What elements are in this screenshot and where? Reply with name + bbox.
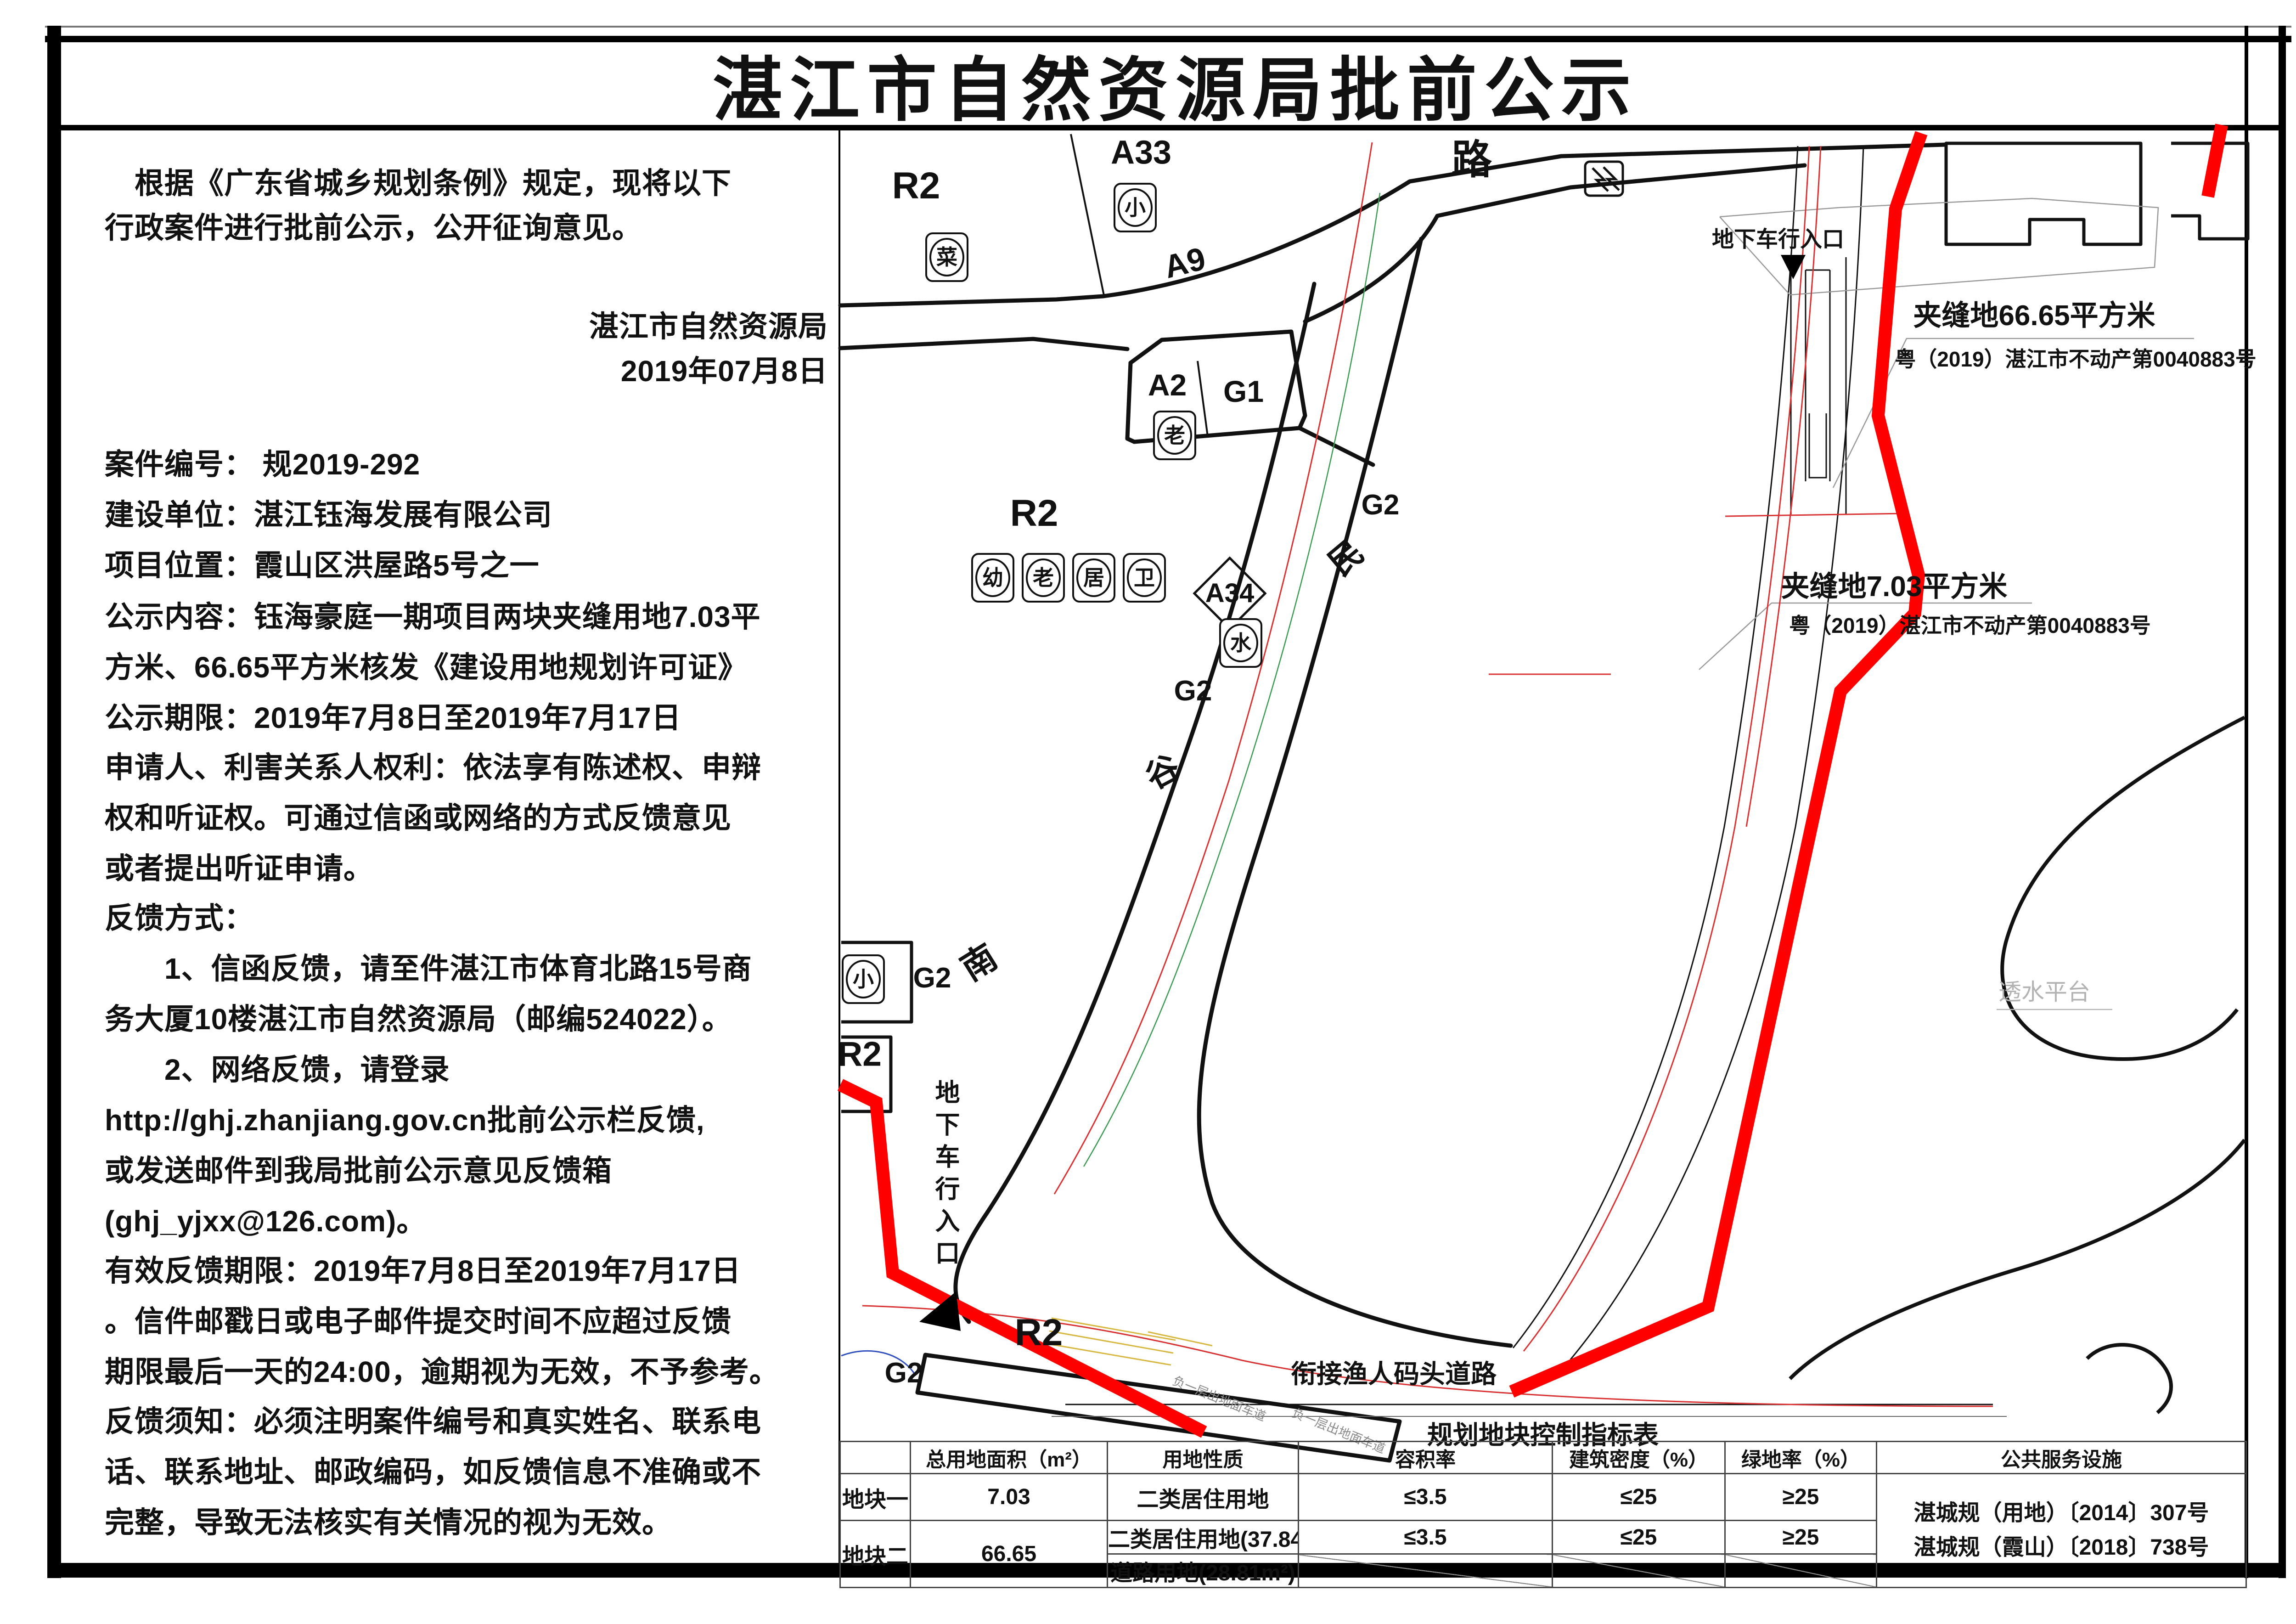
symbol-residence: 居: [1072, 553, 1115, 603]
plot1-density: ≤25: [1553, 1474, 1725, 1521]
services-line-1: 湛城规（用地）〔2014〕307号: [1877, 1496, 2245, 1530]
zone-label-g2: G2: [1362, 491, 1400, 519]
zone-label-a33: A33: [1111, 136, 1171, 169]
symbol-water-glyph: 水: [1223, 624, 1258, 662]
header-total-area: 总用地面积（m²）: [911, 1442, 1108, 1474]
zone-label-a2: A2: [1148, 370, 1187, 400]
symbol-market-glyph: 菜: [929, 238, 964, 276]
header-green: 绿地率（%）: [1725, 1442, 1877, 1474]
symbol-kindergarten: 幼: [971, 553, 1014, 603]
header-services: 公共服务设施: [1877, 1442, 2246, 1474]
notice-sheet: 湛江市自然资源局批前公示 根据《广东省城乡规划条例》规定，现将以下行政案件进行批…: [0, 0, 2296, 1624]
zone-label-r2: R2: [892, 167, 940, 205]
zone-label-a34-text: A34: [1205, 580, 1254, 607]
plot2-label: 地块二: [840, 1521, 911, 1588]
plot2-density-na: [1553, 1554, 1725, 1588]
map-linework: [0, 0, 2296, 1624]
services-cell: 湛城规（用地）〔2014〕307号 湛城规（霞山）〔2018〕738号: [1877, 1474, 2246, 1588]
symbol-elderly: 老: [1153, 411, 1196, 460]
plot2-use-road: 道路用地(28.81m²): [1108, 1554, 1299, 1588]
plot2-density: ≤25: [1553, 1521, 1725, 1554]
zone-label-g2: G2: [1174, 677, 1212, 705]
plot2-far: ≤3.5: [1299, 1521, 1553, 1554]
symbol-kindergarten-glyph: 幼: [975, 558, 1010, 597]
symbol-primary-school-glyph: 小: [1118, 188, 1153, 227]
zone-label-g1: G1: [1223, 376, 1264, 406]
plot1-green: ≥25: [1725, 1474, 1877, 1521]
table-row-plot1: 地块一 7.03 二类居住用地 ≤3.5 ≤25 ≥25 湛城规（用地）〔201…: [840, 1474, 2246, 1521]
indicator-table: 总用地面积（m²） 用地性质 容积率 建筑密度（%） 绿地率（%） 公共服务设施…: [839, 1441, 2247, 1588]
zone-label-r2: R2: [1015, 1314, 1063, 1352]
plot1-use: 二类居住用地: [1108, 1474, 1299, 1521]
header-blank: [840, 1442, 911, 1474]
property-cert-6665-label: 粤（2019）湛江市不动产第0040883号: [1895, 349, 2256, 370]
symbol-elderly: 老: [1022, 553, 1065, 603]
header-land-use: 用地性质: [1108, 1442, 1299, 1474]
property-cert-703-label: 粤（2019）湛江市不动产第0040883号: [1789, 615, 2150, 636]
symbol-market: 菜: [925, 232, 968, 282]
zone-label-r2: R2: [838, 1037, 882, 1071]
plot1-label: 地块一: [840, 1474, 911, 1521]
plot2-use-residential: 二类居住用地(37.84m²): [1108, 1521, 1299, 1554]
zone-label-a34: A34: [1195, 559, 1264, 628]
symbol-elderly-glyph: 老: [1157, 416, 1192, 455]
underground-vehicle-entrance-label: 地下车行入口: [1712, 229, 1844, 251]
zone-label-g2: G2: [885, 1359, 923, 1387]
road-char-lu: 路: [1452, 140, 1492, 180]
header-density: 建筑密度（%）: [1553, 1442, 1725, 1474]
symbol-health-glyph: 卫: [1127, 558, 1162, 597]
header-far: 容积率: [1299, 1442, 1553, 1474]
sliver-land-703-label: 夹缝地7.03平方米: [1781, 573, 2008, 601]
services-line-2: 湛城规（霞山）〔2018〕738号: [1877, 1531, 2245, 1565]
symbol-residence-glyph: 居: [1076, 558, 1111, 597]
plot2-area: 66.65: [911, 1521, 1108, 1588]
permeable-platform-label: 透水平台: [1998, 981, 2090, 1004]
sliver-land-6665-label: 夹缝地66.65平方米: [1913, 302, 2155, 330]
underground-vehicle-entrance-label: 地下车行入口: [933, 1079, 957, 1272]
fisherman-wharf-road-label: 衔接渔人码头道路: [1291, 1361, 1497, 1387]
plot2-green: ≥25: [1725, 1521, 1877, 1554]
zone-label-g2: G2: [913, 964, 951, 992]
zone-label-r2: R2: [1010, 495, 1058, 532]
plot2-far-na: [1299, 1554, 1553, 1588]
site-plan-map: R2菜A33小A9路A2老G1G2民R2幼老居卫A34水G2谷南G2小R2地下车…: [840, 130, 2286, 1578]
symbol-primary-school: 小: [1114, 183, 1157, 232]
plot1-area: 7.03: [911, 1474, 1108, 1521]
symbol-water: 水: [1219, 618, 1262, 668]
plot1-far: ≤3.5: [1299, 1474, 1553, 1521]
table-header-row: 总用地面积（m²） 用地性质 容积率 建筑密度（%） 绿地率（%） 公共服务设施: [840, 1442, 2246, 1474]
symbol-primary-school-glyph: 小: [846, 960, 881, 998]
plot2-green-na: [1725, 1554, 1877, 1588]
symbol-elderly-glyph: 老: [1026, 558, 1061, 597]
symbol-primary-school: 小: [842, 954, 885, 1004]
symbol-health: 卫: [1123, 553, 1166, 603]
